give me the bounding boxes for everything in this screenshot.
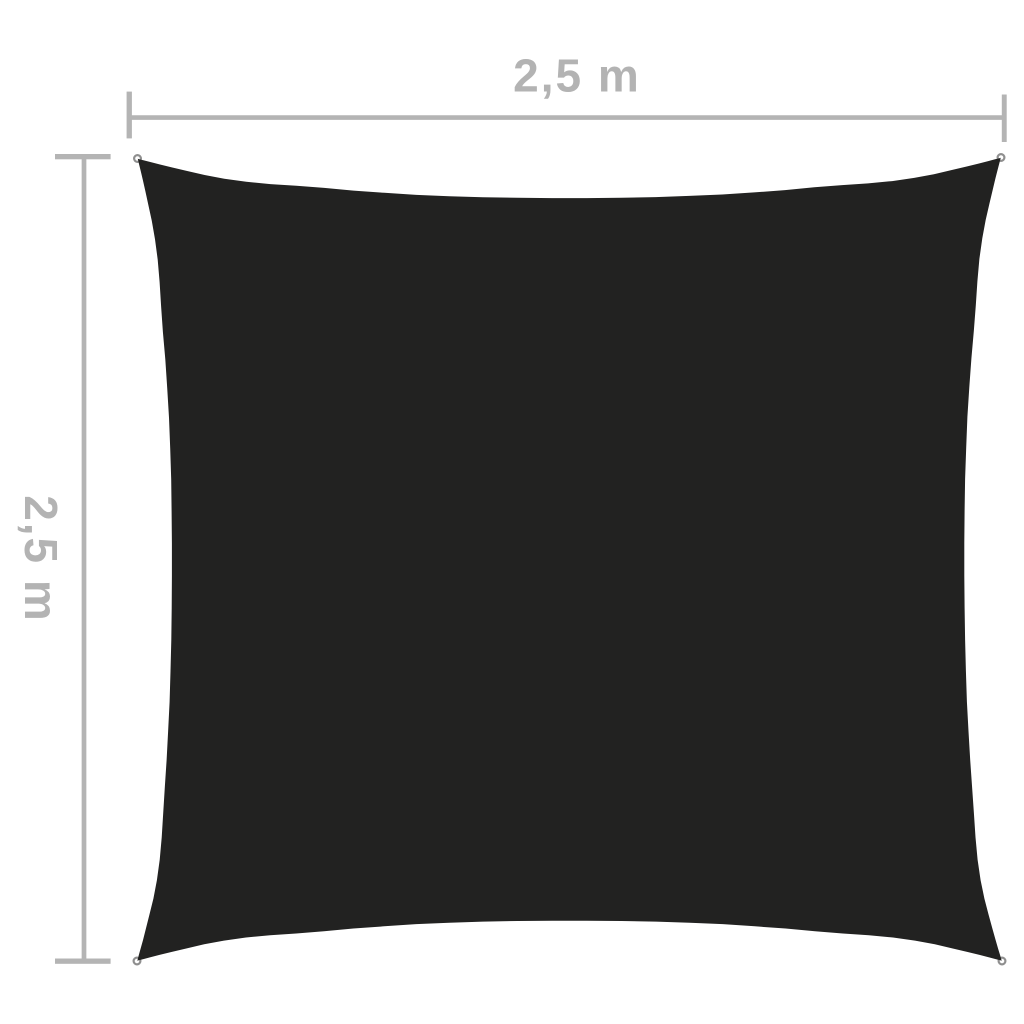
- svg-text:2,5 m: 2,5 m: [15, 495, 67, 623]
- svg-text:2,5 m: 2,5 m: [513, 50, 641, 102]
